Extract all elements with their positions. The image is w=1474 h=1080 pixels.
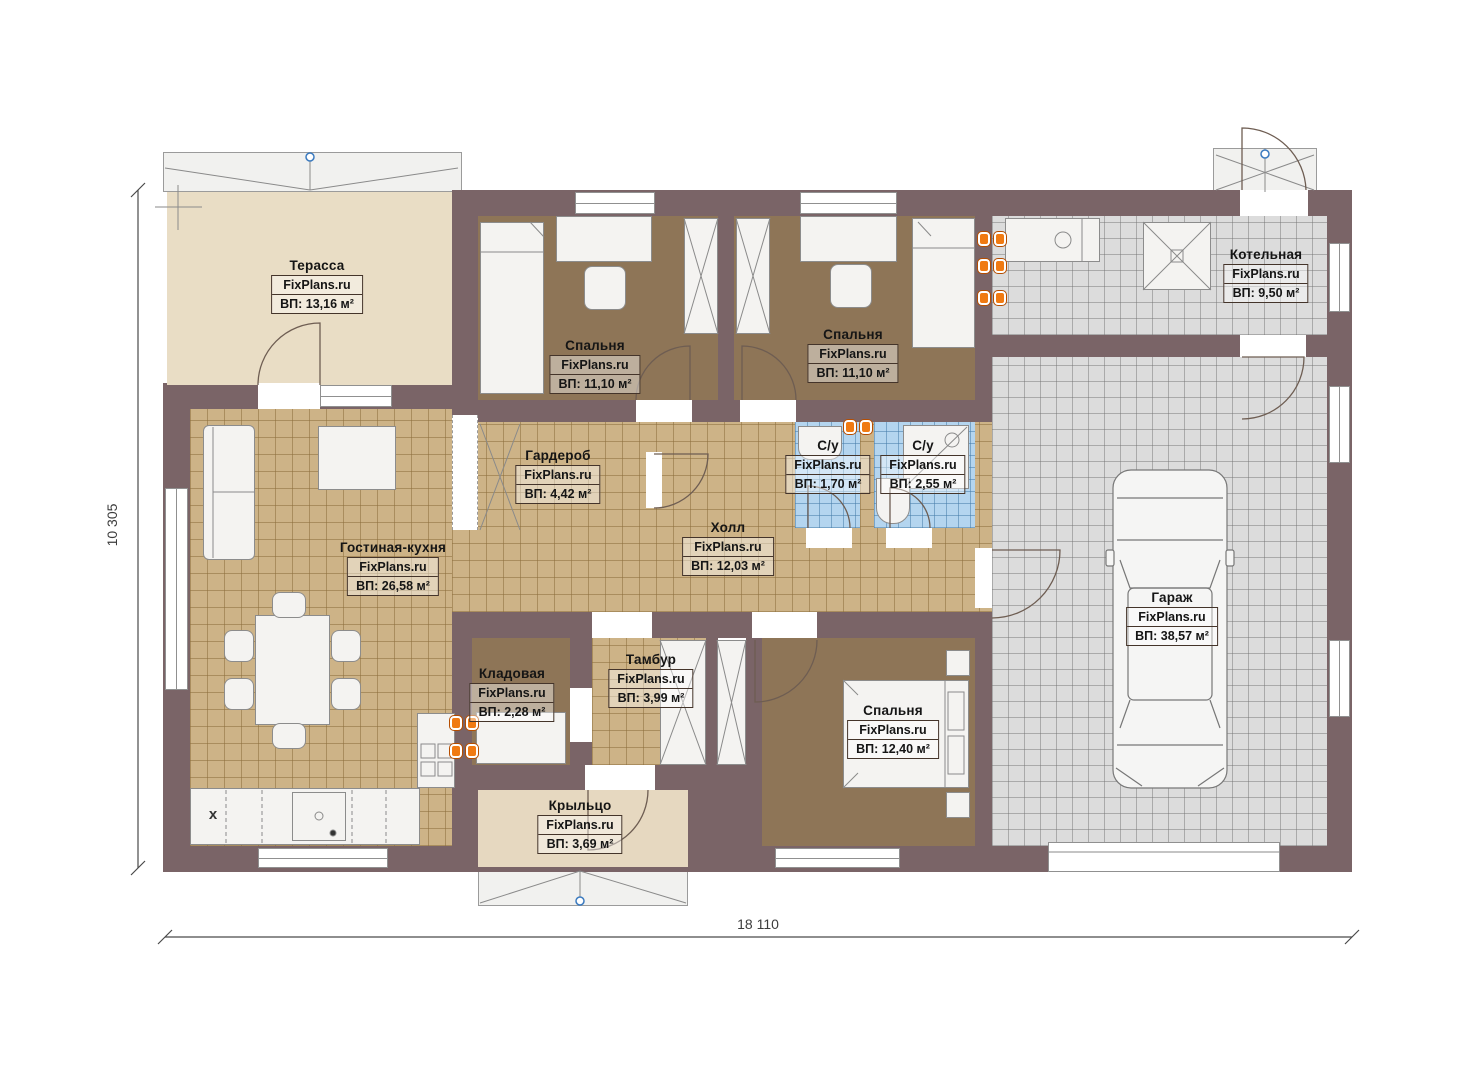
room-brand: FixPlans.ru (538, 816, 621, 834)
room-brand: FixPlans.ru (470, 684, 553, 702)
room-area: ВП: 11,10 м² (550, 374, 639, 393)
room-label-wardrobe: Гардероб FixPlans.ru ВП: 4,42 м² (515, 448, 600, 504)
chair (224, 678, 254, 710)
wall-porch-right-pier (688, 790, 746, 846)
door-opening-hall-garage (975, 548, 992, 608)
room-name: Кладовая (469, 666, 554, 681)
equipment-marker (978, 259, 1006, 273)
door-opening-terrace (258, 383, 320, 409)
room-name: Терасса (271, 258, 363, 273)
tv-stand (318, 426, 396, 490)
room-area: ВП: 26,58 м² (348, 576, 438, 595)
window-garage-right-1 (1329, 386, 1350, 463)
room-name: С/у (785, 438, 870, 453)
room-brand: FixPlans.ru (848, 721, 938, 739)
room-name: Гардероб (515, 448, 600, 463)
room-brand: FixPlans.ru (683, 538, 773, 556)
room-name: Гостиная-кухня (340, 540, 446, 555)
room-label-bedroom-3: Спальня FixPlans.ru ВП: 12,40 м² (847, 703, 939, 759)
room-brand: FixPlans.ru (516, 466, 599, 484)
window-garage-right-2 (1329, 640, 1350, 717)
boiler-entry-canopy (1213, 148, 1317, 192)
desk-chair (584, 266, 626, 310)
room-label-living-kitchen: Гостиная-кухня FixPlans.ru ВП: 26,58 м² (340, 540, 446, 596)
window-living-bottom (258, 848, 388, 868)
window-bedroom3-bottom (775, 848, 900, 868)
room-brand: FixPlans.ru (272, 276, 362, 294)
room-area: ВП: 13,16 м² (272, 294, 362, 313)
room-brand: FixPlans.ru (550, 356, 639, 374)
desk-chair (830, 264, 872, 308)
room-area: ВП: 1,70 м² (786, 474, 869, 493)
window-living-left (165, 488, 188, 690)
wall-porch-left-pier (452, 790, 478, 846)
sofa (203, 425, 255, 560)
wall-bedrooms-divider (718, 190, 734, 422)
room-area: ВП: 2,28 м² (470, 702, 553, 721)
door-opening-hall-vestibule (592, 612, 652, 638)
room-brand: FixPlans.ru (1127, 608, 1217, 626)
wall-bedroom3-garage (975, 638, 992, 846)
chair (331, 630, 361, 662)
room-name: Тамбур (608, 652, 693, 667)
boiler-counter (1005, 218, 1100, 262)
room-label-hall: Холл FixPlans.ru ВП: 12,03 м² (682, 520, 774, 576)
room-area: ВП: 3,99 м² (609, 688, 692, 707)
room-brand: FixPlans.ru (808, 345, 897, 363)
nightstand (946, 650, 970, 676)
desk (556, 216, 652, 262)
room-brand: FixPlans.ru (609, 670, 692, 688)
dining-table (255, 615, 330, 725)
room-label-porch: Крыльцо FixPlans.ru ВП: 3,69 м² (537, 798, 622, 854)
garage-door (1048, 842, 1280, 872)
room-area: ВП: 12,40 м² (848, 739, 938, 758)
window-bedroom1 (575, 192, 655, 214)
dimension-width: 18 110 (737, 916, 779, 932)
wall-bedrooms-bottom (452, 400, 992, 422)
door-opening-boiler-garage (1240, 335, 1306, 357)
room-name: С/у (880, 438, 965, 453)
chair (272, 592, 306, 618)
room-name: Гараж (1126, 590, 1218, 605)
room-label-bathroom-2: С/у FixPlans.ru ВП: 2,55 м² (880, 438, 965, 494)
chair (272, 723, 306, 749)
equipment-marker (978, 232, 1006, 246)
kitchen-sink (292, 792, 346, 841)
kitchen-x-annotation: x (209, 806, 217, 823)
room-label-bedroom-1: Спальня FixPlans.ru ВП: 11,10 м² (549, 338, 640, 394)
room-label-vestibule: Тамбур FixPlans.ru ВП: 3,99 м² (608, 652, 693, 708)
wall-bedroom1-left (452, 190, 478, 422)
room-label-storage: Кладовая FixPlans.ru ВП: 2,28 м² (469, 666, 554, 722)
bed (912, 218, 975, 348)
floor-plan: x Терасса FixPlans.ru ВП: 13,16 м² Спаль… (0, 0, 1474, 1080)
dimension-height: 10 305 (104, 504, 120, 547)
door-opening-bedroom2 (740, 400, 796, 422)
floor-drain (1143, 222, 1211, 290)
room-brand: FixPlans.ru (881, 456, 964, 474)
chair (331, 678, 361, 710)
room-name: Спальня (807, 327, 898, 342)
wardrobe-cabinet (684, 218, 718, 334)
room-label-garage: Гараж FixPlans.ru ВП: 38,57 м² (1126, 590, 1218, 646)
room-area: ВП: 38,57 м² (1127, 626, 1217, 645)
room-area: ВП: 9,50 м² (1224, 283, 1307, 302)
window-terrace-wall (320, 385, 392, 407)
door-opening-bath2 (886, 528, 932, 548)
wall-hall-bottom (452, 612, 992, 638)
nightstand (946, 792, 970, 818)
equipment-marker (450, 744, 478, 758)
room-name: Спальня (847, 703, 939, 718)
room-area: ВП: 3,69 м² (538, 834, 621, 853)
door-opening-wardrobe (646, 452, 662, 508)
room-area: ВП: 12,03 м² (683, 556, 773, 575)
room-label-bathroom-1: С/у FixPlans.ru ВП: 1,70 м² (785, 438, 870, 494)
room-brand: FixPlans.ru (1224, 265, 1307, 283)
door-opening-entrance (585, 765, 655, 790)
window-bedroom2 (800, 192, 897, 214)
room-label-terrace: Терасса FixPlans.ru ВП: 13,16 м² (271, 258, 363, 314)
door-opening-storage (570, 688, 592, 742)
chair (224, 630, 254, 662)
door-opening-bedroom1 (636, 400, 692, 422)
door-opening-bath1 (806, 528, 852, 548)
room-name: Холл (682, 520, 774, 535)
bed (480, 222, 544, 394)
closet-cabinet (717, 640, 746, 765)
wardrobe-niche (452, 415, 478, 530)
door-opening-bedroom3 (752, 612, 817, 638)
room-label-boiler-room: Котельная FixPlans.ru ВП: 9,50 м² (1223, 247, 1308, 303)
terrace-roof-overhang (163, 152, 462, 192)
door-opening-boiler-exterior (1240, 190, 1308, 216)
room-label-bedroom-2: Спальня FixPlans.ru ВП: 11,10 м² (807, 327, 898, 383)
equipment-marker (844, 420, 872, 434)
room-brand: FixPlans.ru (786, 456, 869, 474)
room-area: ВП: 11,10 м² (808, 363, 897, 382)
desk (800, 216, 897, 262)
wardrobe-cabinet (736, 218, 770, 334)
room-name: Котельная (1223, 247, 1308, 262)
porch-roof (478, 867, 688, 906)
room-name: Спальня (549, 338, 640, 353)
equipment-marker (978, 291, 1006, 305)
room-area: ВП: 2,55 м² (881, 474, 964, 493)
room-brand: FixPlans.ru (348, 558, 438, 576)
room-area: ВП: 4,42 м² (516, 484, 599, 503)
wall-bedroom3-left (746, 638, 762, 846)
room-name: Крыльцо (537, 798, 622, 813)
window-boiler-right (1329, 243, 1350, 312)
